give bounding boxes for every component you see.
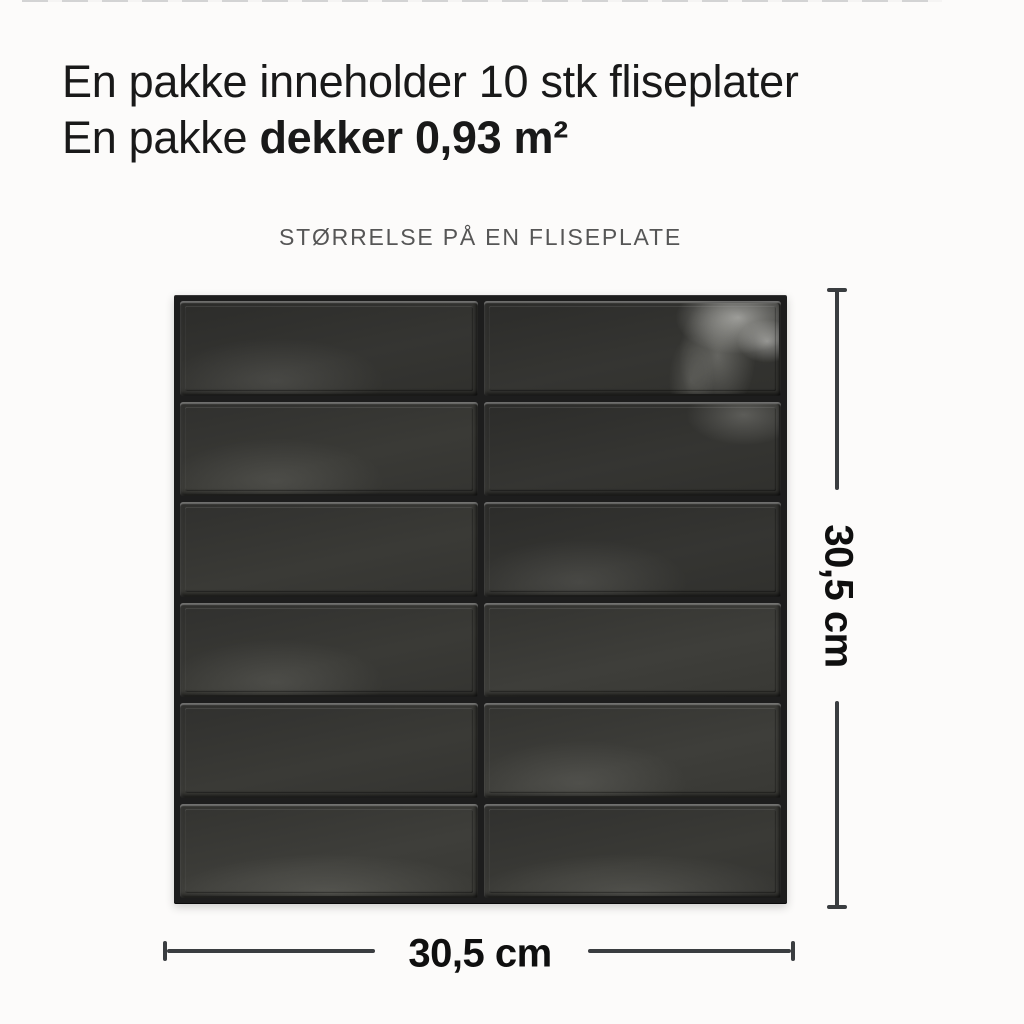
tile-bevel (489, 809, 777, 894)
tile-size-caption: STØRRELSE PÅ EN FLISEPLATE (154, 224, 807, 251)
height-dimension-label: 30,5 cm (816, 524, 861, 667)
tile-bevel (489, 407, 777, 492)
tile-r5-c2 (484, 703, 782, 798)
width-dimension-cap-right (791, 941, 795, 961)
height-dimension-line-lower (835, 701, 839, 909)
header-line2: En pakke dekker 0,93 m² (62, 110, 962, 166)
product-infographic: En pakke inneholder 10 stk fliseplater E… (0, 0, 1024, 1024)
height-dimension-cap-bottom (827, 905, 847, 909)
tile-r2-c1 (180, 402, 478, 497)
tile-panel (174, 295, 787, 904)
tile-bevel (489, 306, 777, 391)
width-dimension-label: 30,5 cm (408, 932, 551, 977)
width-dimension-line-right (588, 949, 791, 953)
tile-r5-c1 (180, 703, 478, 798)
tile-bevel (185, 507, 473, 592)
tile-bevel (489, 507, 777, 592)
tile-r6-c1 (180, 804, 478, 899)
header-line2-bold: dekker 0,93 m² (259, 112, 568, 163)
tile-bevel (185, 407, 473, 492)
tile-r4-c1 (180, 603, 478, 698)
tile-bevel (185, 306, 473, 391)
header-text: En pakke inneholder 10 stk fliseplater E… (62, 54, 962, 166)
tile-r4-c2 (484, 603, 782, 698)
height-dimension-line-upper (835, 288, 839, 490)
tile-r1-c2 (484, 301, 782, 396)
tile-r3-c2 (484, 502, 782, 597)
tile-bevel (489, 608, 777, 693)
width-dimension-line-left (167, 949, 375, 953)
tile-bevel (185, 608, 473, 693)
tile-r1-c1 (180, 301, 478, 396)
tile-bevel (185, 809, 473, 894)
tile-r6-c2 (484, 804, 782, 899)
tile-bevel (185, 708, 473, 793)
top-edge-artifact (22, 0, 942, 2)
tile-r3-c1 (180, 502, 478, 597)
header-line2-regular: En pakke (62, 112, 259, 163)
header-line1: En pakke inneholder 10 stk fliseplater (62, 54, 962, 110)
tile-r2-c2 (484, 402, 782, 497)
tile-bevel (489, 708, 777, 793)
